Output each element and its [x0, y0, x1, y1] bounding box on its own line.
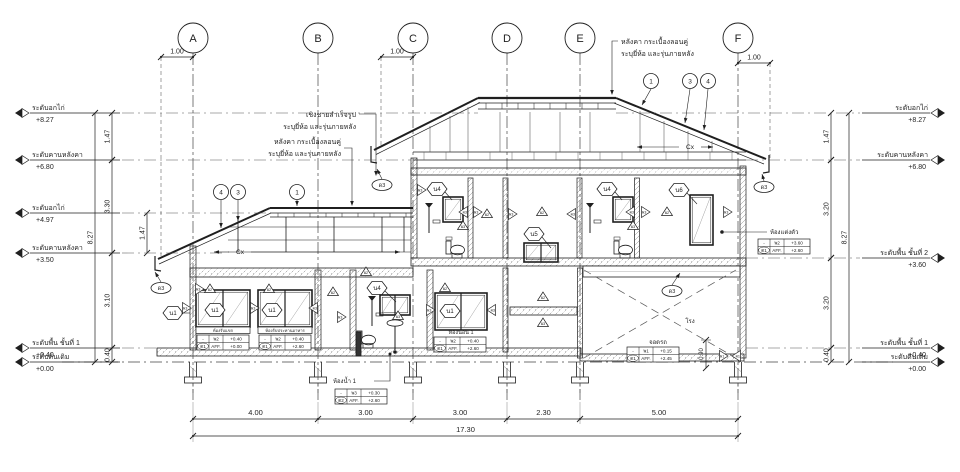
shower-bath2f-right-valve: [594, 220, 601, 223]
roof-slope-right-2: [614, 103, 764, 164]
window-dressing-glass: [693, 198, 710, 242]
roof-beam-band-1f: [190, 268, 413, 277]
spec-table-cell: +2.60: [368, 398, 380, 403]
level-name: ระดับดินเดิม: [891, 353, 928, 361]
window-bedroom1-glass: [464, 296, 484, 327]
spec-table-cell: AFF.: [641, 356, 650, 361]
level-name: ระดับคานหลังคา: [32, 244, 83, 252]
top-dim-label: 1.00: [747, 55, 761, 62]
level-marker: [931, 156, 938, 165]
level-value: +4.97: [36, 217, 54, 224]
roof-slope-left: [374, 98, 478, 150]
shower-bath2f-left-valve: [433, 220, 440, 223]
level-marker: [931, 344, 938, 353]
level-marker: [22, 344, 29, 353]
note-text: ระบุยี่ห้อ และรุ่นภายหลัง: [621, 49, 694, 58]
spec-table-cell: ด1: [630, 356, 636, 361]
note-leader: [359, 114, 376, 174]
hex-tag-label: น4: [433, 187, 441, 193]
door-leaf-bath1: [356, 332, 361, 356]
v-dim-label: 3.20: [824, 296, 831, 310]
spec-table-cell: ด1: [200, 344, 206, 349]
leader-arrow: [295, 201, 299, 206]
level-name: ระดับอกไก่: [895, 103, 928, 112]
v-dim-label: 1.47: [105, 130, 112, 144]
hex-tag-label: น1: [268, 308, 276, 314]
v-dim-label: 1.47: [824, 130, 831, 144]
label-anchor-dot: [389, 353, 392, 356]
bottom-dim-label: 3.00: [453, 408, 468, 417]
v-dim-label: 3.30: [105, 200, 112, 214]
level-name: ระดับพื้น ชั้นที่ 2: [880, 246, 928, 257]
level-value: +6.80: [36, 164, 54, 171]
triangle-tag-label: ผ3: [196, 288, 200, 292]
level-name: ระดับคานหลังคา: [877, 151, 928, 159]
level-marker: [22, 249, 29, 258]
drawing-sheet: ABCDEF1.001.001.008.271.473.303.100.401.…: [0, 0, 960, 472]
triangle-tag-label: ผ3: [183, 307, 187, 311]
bath-accessory: [446, 237, 452, 240]
wall-section: [503, 178, 508, 258]
total-dim-label: 17.30: [456, 425, 475, 434]
v-dim-label: 0.40: [824, 348, 831, 362]
purlin-label: Cx: [686, 144, 695, 151]
wall-section: [350, 270, 356, 350]
spec-table-cell: +2.60: [791, 248, 803, 253]
v-dim-label: 3.10: [105, 294, 112, 308]
circle-tag-label: 3: [236, 189, 240, 196]
v-dim-label: 0.40: [105, 348, 112, 362]
dim-dot: [412, 56, 414, 58]
leader-arrow: [350, 201, 354, 206]
grid-bubble-label: B: [314, 33, 321, 45]
window-hall2f-glass: [527, 246, 538, 259]
spec-table-cell: พ2: [774, 240, 780, 245]
room-label: ห้องนอน 1: [448, 329, 473, 336]
building-section-drawing: ABCDEF1.001.001.008.271.473.303.100.401.…: [0, 0, 960, 472]
circle-tag-label: 3: [688, 78, 692, 85]
note-leader: [344, 148, 352, 204]
circle-tag-label: 1: [649, 78, 653, 85]
level-value: +0.00: [908, 366, 926, 373]
level-value: +6.80: [908, 164, 926, 171]
window-hall2f-glass: [544, 246, 555, 259]
triangle-tag-label: ผ3: [461, 225, 465, 229]
spec-table-cell: +0.00: [230, 344, 242, 349]
spec-table-cell: ด2: [338, 398, 344, 403]
leader-arrow: [760, 174, 765, 180]
level-value: +3.50: [36, 257, 54, 264]
triangle-tag-label: ผ2: [443, 287, 447, 291]
grid-bubble-label: F: [735, 33, 742, 45]
top-dim-label: 1.00: [170, 49, 184, 56]
label-leader: [374, 356, 390, 381]
ellipse-tag-label: ด3: [761, 185, 768, 191]
triangle-tag-label: ผ2: [540, 211, 544, 215]
level-marker: [15, 344, 22, 353]
leader-arrow: [610, 90, 614, 95]
hex-tag-label: น1: [169, 311, 177, 317]
circle-tag-label: 1: [295, 189, 299, 196]
level-marker: [931, 254, 938, 263]
triangle-tag-label: ผ3: [541, 322, 545, 326]
bath-accessory: [614, 237, 620, 240]
leader-arrow: [374, 171, 378, 176]
triangle-tag-label: ผ3: [474, 211, 478, 215]
level-value: +8.27: [908, 117, 926, 124]
level-marker: [15, 358, 22, 367]
grid-bubble-label: D: [503, 33, 511, 45]
wall-section: [577, 178, 582, 258]
dim-dot: [737, 62, 739, 64]
v-dim-label: 3.20: [824, 202, 831, 216]
triangle-tag-label: ผ3: [571, 213, 575, 217]
level-value: +0.00: [36, 366, 54, 373]
level-value: +3.60: [908, 262, 926, 269]
triangle-tag-label: ผ3: [724, 211, 728, 215]
top-dim-label: 1.00: [390, 49, 404, 56]
leader-arrow: [219, 223, 223, 228]
shower-bath1-head: [368, 296, 376, 301]
floor2-slab: [411, 258, 746, 266]
ellipse-tag-label: ด3: [669, 289, 676, 295]
window-dining-glass: [288, 293, 309, 324]
triangle-tag-label: ผ3: [509, 213, 513, 217]
level-name: ระดับคานหลังคา: [32, 151, 83, 159]
level-marker: [15, 249, 22, 258]
spec-table-cell: ด1: [262, 344, 268, 349]
room-label: โรง: [685, 317, 694, 325]
leader-arrow: [637, 145, 642, 149]
triangle-tag-label: ผ2: [541, 296, 545, 300]
spec-table-cell: +0.15: [660, 348, 672, 353]
shower-bath2f-right-head: [586, 203, 594, 208]
triangle-tag-label: ผ2: [665, 211, 669, 215]
hex-tag-label: น6: [675, 188, 683, 194]
toilet-bath2f-left-tank: [446, 241, 451, 254]
triangle-tag-label: ผ3: [418, 189, 422, 193]
wall-section: [503, 268, 508, 352]
window-bath2f-right-glass: [616, 200, 630, 219]
spec-table-cell: +2.60: [292, 344, 304, 349]
room-label: ห้องน้ำ 1: [333, 375, 357, 385]
leader-arrow: [153, 271, 159, 277]
roof-slope-left-2: [376, 103, 480, 155]
room-label: ห้องแต่งตัว: [770, 229, 798, 236]
bottom-dim-label: 3.00: [358, 408, 373, 417]
hex-tag-label: น4: [603, 187, 611, 193]
spec-table-cell: +0.30: [368, 390, 380, 395]
spec-table-cell: พ2: [213, 336, 219, 341]
level-name: ระดับดินเดิม: [32, 353, 69, 361]
level-marker: [22, 109, 29, 118]
v-dim-label: 8.27: [842, 231, 849, 245]
hex-tag-leader: [445, 192, 452, 200]
misc-dim-label: 0.90: [699, 348, 705, 360]
wall-section: [578, 268, 583, 358]
layer-levels: ระดับอกไก่+8.27ระดับคานหลังคา+6.80ระดับอ…: [15, 103, 945, 373]
level-marker: [938, 358, 945, 367]
spec-table-cell: พ1: [643, 348, 649, 353]
triangle-tag-label: ผ3: [631, 225, 635, 229]
note-text: หลังคา กระเบื้องลอนคู่: [274, 135, 341, 146]
spec-table-cell: +2.45: [660, 356, 672, 361]
triangle-tag-label: ผ3: [491, 309, 495, 313]
note-text: เชิงชายสำเร็จรูป: [306, 110, 357, 119]
leader-arrow: [236, 216, 240, 221]
triangle-tag-label: ผ2: [331, 291, 335, 295]
triangle-tag-label: ผ1: [736, 355, 740, 359]
level-marker: [931, 109, 938, 118]
level-marker: [938, 109, 945, 118]
hex-tag-label: น5: [530, 232, 538, 238]
triangle-tag-label: ผ3: [642, 211, 646, 215]
layer-grade: [62, 348, 893, 393]
hex-tag-label: น1: [211, 308, 219, 314]
spec-table-cell: AFF.: [273, 344, 282, 349]
leader-arrow: [640, 100, 646, 106]
basin-base-dot: [393, 350, 397, 354]
wall-section: [635, 178, 640, 258]
spec-table-cell: +0.40: [292, 336, 304, 341]
level-name: ระดับอกไก่: [32, 203, 65, 212]
triangle-tag-label: ผ3: [396, 315, 400, 319]
triangle-tag-label: ผ2: [208, 288, 212, 292]
level-marker: [22, 156, 29, 165]
bottom-dim-label: 2.30: [536, 408, 551, 417]
spec-table-cell: พ2: [450, 338, 456, 343]
level-marker: [22, 358, 29, 367]
spec-table-cell: พ3: [351, 390, 357, 395]
window-bath1-glass: [383, 298, 392, 312]
note-leader: [612, 41, 618, 93]
hex-tag-leader: [615, 192, 622, 200]
grid-bubble-label: C: [409, 33, 417, 45]
spec-table-cell: AFF.: [211, 344, 220, 349]
ceiling-beam-band-2f: [411, 168, 746, 175]
room-label: จอดรถ: [649, 339, 667, 346]
wall-section: [190, 246, 196, 350]
spec-table-cell: AFF.: [448, 346, 457, 351]
spec-table-cell: AFF.: [349, 398, 358, 403]
label-anchor-dot: [720, 230, 724, 234]
triangle-tag-label: ผ2: [267, 288, 271, 292]
level-name: ระดับอกไก่: [32, 103, 65, 112]
spec-table-cell: +3.60: [791, 240, 803, 245]
level-marker: [15, 209, 22, 218]
triangle-tag-label: ผ3: [313, 307, 317, 311]
window-bath1-glass: [398, 298, 407, 312]
purlin-label: Cx: [236, 249, 245, 256]
ellipse-tag-label: ด3: [379, 183, 386, 189]
dim-dot: [192, 56, 194, 58]
hex-tag-label: น1: [446, 309, 454, 315]
leanto-slope-2: [159, 213, 271, 264]
spec-table-cell: ด1: [437, 346, 443, 351]
window-living-glass: [226, 293, 247, 324]
circle-tag-label: 4: [219, 189, 223, 196]
bottom-dim-label: 4.00: [248, 408, 263, 417]
level-marker: [931, 358, 938, 367]
triangle-tag-label: ผ2: [364, 271, 368, 275]
wall-section: [468, 178, 473, 258]
level-marker: [15, 109, 22, 118]
level-marker: [938, 254, 945, 263]
spec-table-cell: +2.60: [467, 346, 479, 351]
triangle-tag-label: ผ3: [630, 211, 634, 215]
spec-table-cell: +0.40: [467, 338, 479, 343]
leader-arrow: [395, 250, 400, 254]
note-text: ระบุยี่ห้อ และรุ่นภายหลัง: [268, 149, 341, 158]
triangle-tag-label: ผ2: [485, 213, 489, 217]
spec-table-cell: พ2: [275, 336, 281, 341]
spec-table-cell: AFF.: [772, 248, 781, 253]
note-text: ระบุยี่ห้อ และรุ่นภายหลัง: [283, 122, 356, 131]
level-marker: [22, 209, 29, 218]
v-dim-label: 1.47: [140, 226, 147, 240]
note-text: หลังคา กระเบื้องลอนคู่: [621, 35, 688, 46]
window-bath2f-left-glass: [446, 200, 460, 219]
triangle-tag-label: ผ3: [251, 307, 255, 311]
triangle-tag-label: ผ3: [427, 309, 431, 313]
v-dim-label: 8.27: [88, 231, 95, 245]
level-name: ระดับพื้น ชั้นที่ 1: [32, 336, 80, 347]
shower-bath2f-left-head: [425, 203, 433, 208]
grid-bubble-label: E: [576, 33, 583, 45]
leader-line: [704, 89, 708, 130]
leader-line: [685, 89, 690, 123]
leader-arrow: [702, 125, 706, 130]
triangle-tag-label: ผ1: [720, 355, 724, 359]
stair-landing-band: [510, 307, 577, 315]
level-marker: [938, 156, 945, 165]
hex-tag-label: น4: [373, 286, 381, 292]
triangle-tag-label: ผ3: [338, 316, 342, 320]
circle-tag-label: 4: [706, 78, 710, 85]
spec-table-cell: +0.40: [230, 336, 242, 341]
leanto-slope: [158, 208, 270, 259]
basin-bath1: [387, 320, 403, 326]
bottom-dim-label: 5.00: [652, 408, 667, 417]
spec-table-cell: ด1: [761, 248, 767, 253]
grid-bubble-label: A: [189, 33, 197, 45]
level-value: +8.27: [36, 117, 54, 124]
level-marker: [938, 344, 945, 353]
room-label: ห้องรับประทานอาหาร: [265, 328, 305, 333]
room-label: ห้องรับแขก: [213, 328, 234, 333]
toilet-bath2f-right-tank: [614, 241, 619, 254]
ellipse-tag-label: ด3: [158, 286, 165, 292]
page: { "page": {"bg":"#ffffff","ink":"#1f1f1f…: [0, 0, 960, 472]
triangle-tag-label: ผ3: [463, 211, 467, 215]
level-marker: [15, 156, 22, 165]
level-name: ระดับพื้น ชั้นที่ 1: [880, 336, 928, 347]
